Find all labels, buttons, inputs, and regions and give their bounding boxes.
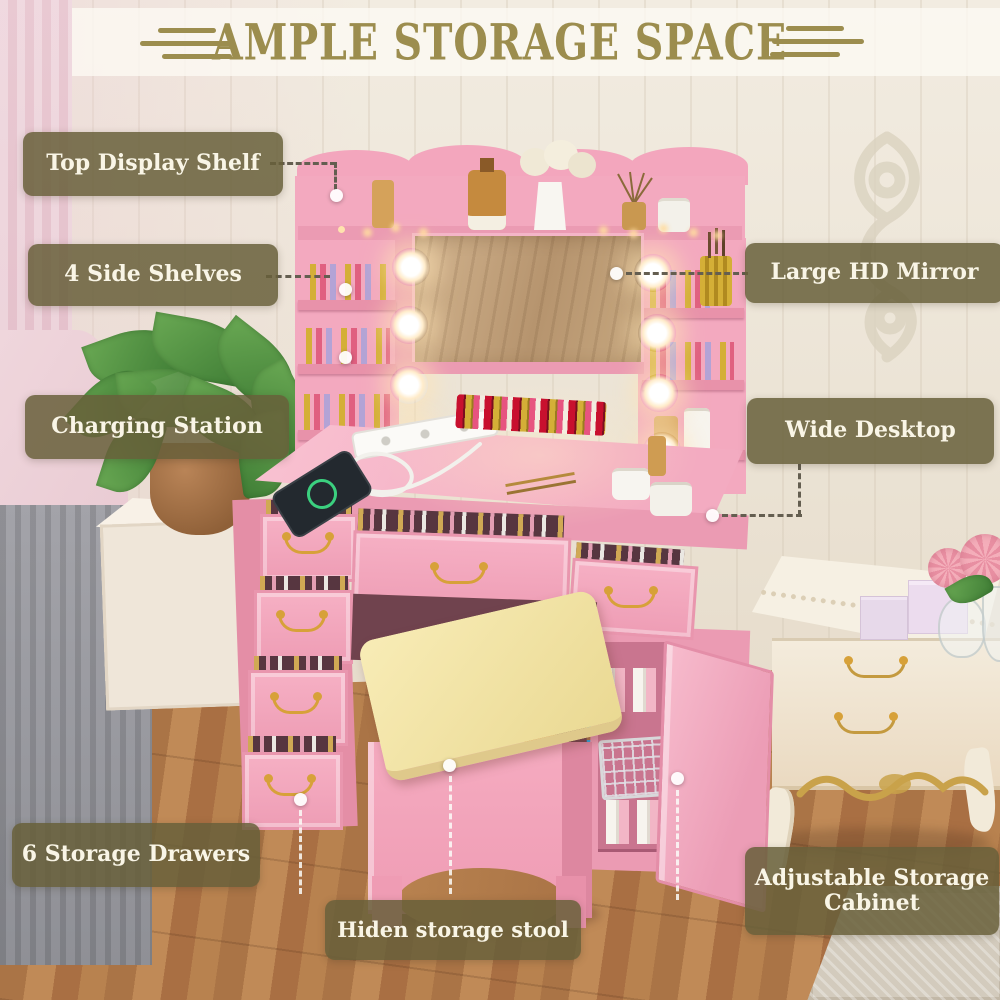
cream-jar	[658, 198, 690, 232]
callout-dot	[443, 759, 456, 772]
callout-dot	[610, 267, 623, 280]
cream-jar	[612, 468, 650, 500]
callout-label: Top Display Shelf	[46, 151, 260, 176]
callout-dot	[339, 283, 352, 296]
leader-storage-drawers	[299, 810, 302, 894]
cosmetics-shelf-items	[304, 394, 390, 430]
makeup-brushes	[708, 232, 711, 258]
led-string-lights	[338, 226, 345, 233]
side-shelf-board	[298, 300, 396, 310]
speed-line-icon	[140, 41, 232, 46]
leader-wide-desktop	[798, 464, 801, 516]
flower-puff	[568, 152, 596, 178]
led-bulb	[390, 366, 428, 404]
callout-dot	[671, 772, 684, 785]
cream-jar	[650, 482, 692, 516]
callout-dot	[339, 351, 352, 364]
flower-vase	[534, 182, 566, 230]
brush-cup	[700, 256, 732, 306]
leader-large-hd-mirror	[626, 272, 748, 275]
leader-storage-cabinet	[676, 790, 679, 900]
callout-label: 6 Storage Drawers	[22, 842, 250, 867]
callout-storage-drawers: 6 Storage Drawers	[12, 823, 260, 887]
speed-line-icon	[772, 39, 864, 44]
callout-dot	[330, 189, 343, 202]
perfume-bottle	[468, 170, 506, 230]
hd-mirror	[412, 233, 644, 371]
pedestal-cabinet	[100, 519, 256, 710]
led-bulb	[392, 248, 430, 286]
cabinet-bottles	[606, 800, 662, 844]
callout-label: Charging Station	[51, 414, 263, 439]
callout-hidden-storage-stool: Hiden storage stool	[325, 900, 581, 960]
callout-label: 4 Side Shelves	[64, 262, 242, 287]
callout-wide-desktop: Wide Desktop	[747, 398, 994, 464]
callout-label: Wide Desktop	[785, 418, 956, 443]
cosmetics-shelf-items	[310, 264, 390, 300]
callout-label: Hiden storage stool	[337, 918, 569, 942]
battery-ring-icon	[301, 473, 342, 514]
speed-line-icon	[162, 54, 232, 59]
callout-label: Adjustable Storage Cabinet	[753, 866, 991, 917]
callout-label: Large HD Mirror	[770, 260, 978, 285]
callout-dot	[294, 793, 307, 806]
product-infographic: AMPLE STORAGE SPACE Top Display Shelf 4 …	[0, 0, 1000, 1000]
page-title-text: AMPLE STORAGE SPACE	[212, 14, 787, 71]
speed-line-icon	[786, 26, 844, 31]
leader-wide-desktop	[722, 514, 802, 517]
callout-side-shelves: 4 Side Shelves	[28, 244, 278, 306]
callout-dot	[706, 509, 719, 522]
callout-top-display-shelf: Top Display Shelf	[23, 132, 283, 196]
callout-adjustable-storage-cabinet: Adjustable Storage Cabinet	[745, 847, 999, 935]
leader-top-display-shelf	[334, 162, 337, 190]
nightstand-handle	[836, 716, 896, 734]
speed-line-icon	[770, 52, 840, 57]
leader-storage-stool	[449, 776, 452, 894]
speed-line-icon	[158, 28, 216, 33]
serum-bottle	[648, 436, 666, 476]
perfume-bottle	[372, 180, 394, 228]
led-bulb	[390, 306, 428, 344]
led-bulb	[638, 314, 676, 352]
side-shelf-board	[298, 364, 396, 374]
callout-charging-station: Charging Station	[25, 395, 289, 459]
decor-box	[860, 596, 908, 640]
bottle-cap	[480, 158, 494, 172]
reed-diffuser	[608, 168, 660, 232]
nightstand-handle	[846, 660, 906, 678]
nightstand-gold-carving	[795, 762, 990, 804]
glass-vase	[938, 596, 986, 658]
mirror-sill	[412, 362, 644, 374]
callout-large-hd-mirror: Large HD Mirror	[745, 243, 1000, 303]
